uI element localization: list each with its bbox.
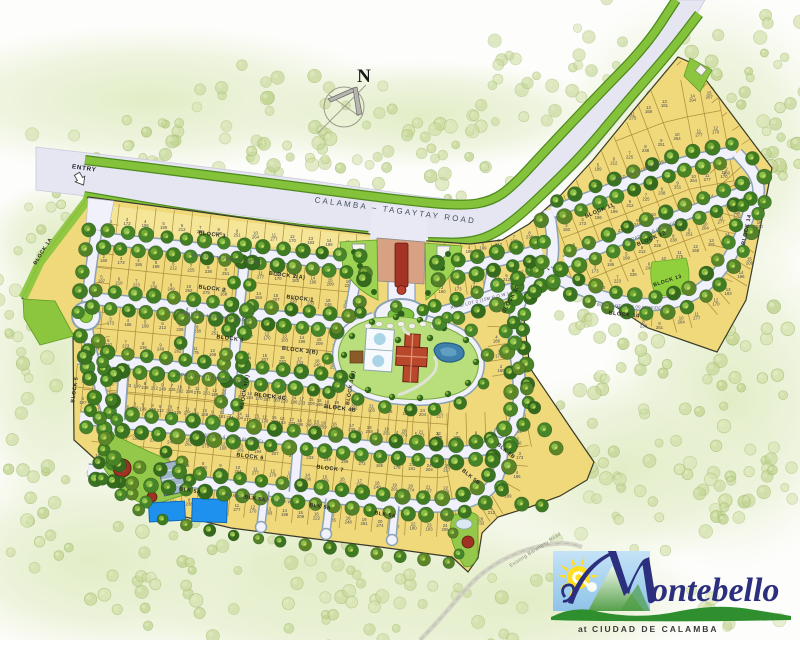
svg-text:212: 212 [178,227,186,232]
svg-text:223: 223 [133,283,141,288]
svg-text:264: 264 [702,225,710,230]
svg-text:251: 251 [234,233,242,238]
svg-text:168: 168 [209,352,217,357]
svg-text:277: 277 [257,275,265,280]
svg-text:217: 217 [443,468,451,473]
svg-text:196: 196 [309,280,317,285]
svg-text:196: 196 [737,274,745,279]
svg-text:173: 173 [516,455,524,460]
svg-text:238: 238 [640,324,648,329]
svg-text:199: 199 [479,246,487,251]
svg-text:197: 197 [98,279,106,284]
svg-text:277: 277 [693,315,701,320]
svg-text:165: 165 [376,463,384,468]
svg-text:225: 225 [654,243,662,248]
svg-text:249: 249 [157,347,165,352]
svg-text:N: N [357,66,371,87]
svg-text:173: 173 [107,320,115,325]
svg-text:248: 248 [366,429,374,434]
svg-text:196: 196 [281,512,289,517]
svg-text:186: 186 [124,322,132,327]
svg-text:183: 183 [281,337,289,342]
svg-text:186: 186 [493,339,501,344]
svg-text:199: 199 [623,256,631,261]
svg-text:238: 238 [186,389,194,394]
svg-text:199: 199 [142,324,150,329]
svg-text:183: 183 [307,240,315,245]
svg-text:199: 199 [611,209,619,214]
svg-text:168: 168 [692,248,700,253]
svg-text:212: 212 [639,249,647,254]
svg-text:277: 277 [233,507,241,512]
svg-text:160: 160 [100,258,108,263]
svg-text:196: 196 [326,242,334,247]
svg-text:186: 186 [135,262,143,267]
svg-text:168: 168 [645,109,653,114]
svg-text:223: 223 [122,343,130,348]
svg-text:173: 173 [591,269,599,274]
svg-text:261: 261 [361,521,369,526]
svg-text:246: 246 [316,402,324,407]
svg-text:173: 173 [454,287,462,292]
svg-text:180: 180 [410,526,418,531]
svg-text:199: 199 [594,167,602,172]
svg-text:248: 248 [345,519,353,524]
svg-text:160: 160 [723,170,731,175]
svg-text:212: 212 [626,203,634,208]
svg-text:170: 170 [249,509,257,514]
svg-text:236: 236 [630,272,638,277]
svg-text:186: 186 [513,474,521,479]
svg-text:207: 207 [706,95,714,100]
svg-text:251: 251 [658,142,666,147]
svg-text:212: 212 [610,161,618,166]
svg-text:199: 199 [152,264,160,269]
svg-text:168: 168 [201,412,209,417]
svg-text:196: 196 [290,399,298,404]
svg-text:204: 204 [419,412,427,417]
svg-text:272: 272 [359,461,367,466]
svg-text:251: 251 [656,325,664,330]
svg-text:209: 209 [308,401,316,406]
svg-text:186: 186 [607,262,615,267]
svg-text:210: 210 [115,281,123,286]
svg-text:173: 173 [579,221,587,226]
svg-text:at: at [578,624,588,634]
svg-text:249: 249 [159,387,167,392]
svg-text:165: 165 [368,407,376,412]
svg-text:264: 264 [252,234,260,239]
svg-text:212: 212 [488,510,496,515]
svg-text:196: 196 [298,339,306,344]
svg-text:CIUDAD DE CALAMBA: CIUDAD DE CALAMBA [592,624,719,634]
svg-text:238: 238 [670,237,678,242]
svg-text:249: 249 [168,286,176,291]
svg-text:225: 225 [187,268,195,273]
svg-text:194: 194 [255,295,263,300]
svg-text:160: 160 [439,289,447,294]
svg-text:251: 251 [686,231,694,236]
svg-text:238: 238 [642,148,650,153]
svg-text:277: 277 [718,219,726,224]
svg-text:275: 275 [194,390,202,395]
svg-text:251: 251 [203,391,211,396]
svg-text:275: 275 [629,115,637,120]
svg-text:212: 212 [170,266,178,271]
svg-text:277: 277 [270,236,278,241]
svg-text:170: 170 [712,301,720,306]
svg-text:ontebello: ontebello [651,572,779,609]
svg-text:238: 238 [658,191,666,196]
svg-text:212: 212 [503,277,511,282]
svg-text:212: 212 [157,408,165,413]
svg-text:170: 170 [712,129,720,134]
svg-text:264: 264 [674,136,682,141]
svg-text:246: 246 [325,302,333,307]
svg-text:183: 183 [725,291,733,296]
svg-text:168: 168 [219,445,227,450]
svg-text:262: 262 [185,288,193,293]
svg-text:264: 264 [678,320,686,325]
svg-text:209: 209 [746,260,754,265]
svg-text:181: 181 [218,414,226,419]
svg-text:173: 173 [123,221,131,226]
svg-text:173: 173 [118,260,126,265]
svg-text:238: 238 [205,269,213,274]
svg-text:277: 277 [695,132,703,137]
svg-text:262: 262 [176,388,184,393]
svg-text:181: 181 [708,242,716,247]
svg-text:204: 204 [426,467,434,472]
svg-text:199: 199 [160,225,168,230]
svg-text:225: 225 [168,387,176,392]
svg-text:251: 251 [674,184,682,189]
svg-text:199: 199 [139,406,147,411]
svg-text:170: 170 [289,238,297,243]
svg-text:225: 225 [642,197,650,202]
svg-text:160: 160 [563,227,571,232]
svg-text:191: 191 [408,466,416,471]
svg-text:170: 170 [261,419,269,424]
svg-text:212: 212 [159,325,167,330]
svg-text:223: 223 [614,279,622,284]
svg-text:251: 251 [222,271,230,276]
svg-text:197: 197 [79,400,87,405]
svg-text:193: 193 [426,526,434,531]
svg-text:194: 194 [689,98,697,103]
svg-text:209: 209 [316,341,324,346]
svg-text:209: 209 [297,514,305,519]
svg-text:199: 199 [134,384,142,389]
svg-text:170: 170 [263,336,271,341]
svg-text:236: 236 [141,385,149,390]
svg-text:264: 264 [690,178,698,183]
svg-text:233: 233 [298,401,306,406]
svg-text:209: 209 [327,281,335,286]
svg-text:277: 277 [704,177,712,182]
svg-text:225: 225 [176,327,184,332]
svg-text:212: 212 [151,385,159,390]
svg-text:181: 181 [661,103,669,108]
svg-text:170: 170 [269,473,277,478]
svg-text:225: 225 [626,154,634,159]
svg-text:222: 222 [313,516,321,521]
svg-text:274: 274 [376,523,384,528]
